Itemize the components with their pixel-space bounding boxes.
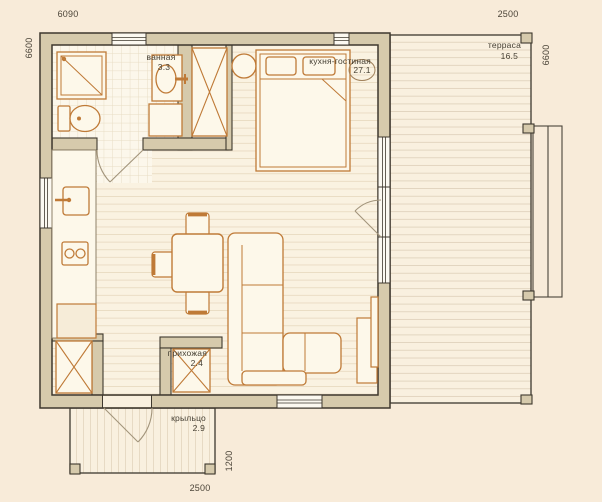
window-terrace-wall: [378, 137, 390, 283]
wall-closet-right: [92, 341, 103, 395]
washing-machine-icon: [149, 104, 182, 136]
label-porch-name: крыльцо: [146, 413, 206, 423]
window-bottom: [277, 395, 322, 408]
wall-bathroom-bottom-right: [143, 138, 228, 150]
dimension-porch-side: 1200: [224, 447, 234, 475]
dimension-top-right: 2500: [488, 9, 528, 19]
label-hallway-area: 2.4: [143, 358, 203, 368]
dining-table-icon: [172, 234, 223, 292]
label-bathroom-area: 3.3: [150, 62, 178, 72]
label-terrace-area: 16.5: [458, 51, 518, 61]
dimension-top: 6090: [50, 9, 86, 19]
bedside-table-icon: [232, 54, 256, 78]
toilet-icon: [58, 106, 100, 132]
floor-plan-canvas: 6090 2500 6600 6600 2500 1200 ванная 3.3…: [0, 0, 602, 502]
entrance-opening: [103, 395, 152, 407]
dimension-bottom: 2500: [180, 483, 220, 493]
pillow-icon: [266, 57, 296, 75]
dimension-left: 6600: [24, 34, 34, 62]
stove-icon: [62, 242, 88, 265]
window-kitchen-left: [40, 178, 52, 228]
floor-plan-drawing: [0, 0, 602, 502]
chair-icon: [152, 252, 174, 277]
kitchen-counter: [52, 150, 96, 338]
label-kitchen-living-area: 27.1: [348, 65, 376, 75]
label-porch-area: 2.9: [145, 423, 205, 433]
window-bedroom-top: [334, 33, 349, 45]
wall-hallway-top: [160, 337, 222, 348]
dimension-right: 6600: [541, 41, 551, 69]
wall-bathroom-bottom-left: [52, 138, 97, 150]
wardrobe-top-icon: [192, 48, 227, 136]
shower-icon: [57, 52, 106, 99]
label-bathroom-name: ванная: [138, 52, 184, 62]
chair-icon: [186, 290, 209, 314]
bed-icon: [256, 50, 350, 171]
window-bathroom-top: [112, 33, 146, 45]
kitchen-cabinet-icon: [57, 304, 96, 338]
wardrobe-closet-icon: [56, 341, 92, 393]
label-hallway-name: прихожая: [147, 348, 207, 358]
label-terrace-name: терраса: [461, 40, 521, 50]
